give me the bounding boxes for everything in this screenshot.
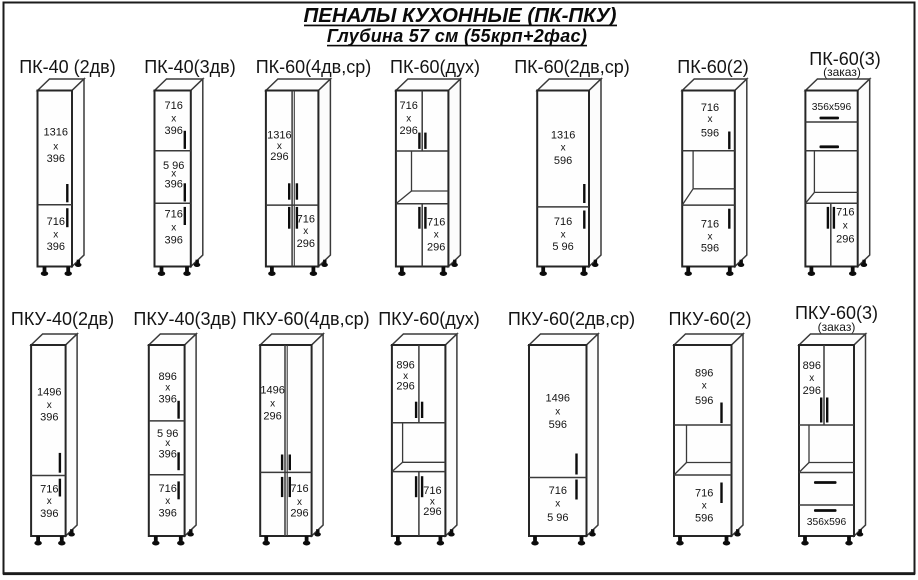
svg-text:716: 716 [423,485,441,497]
svg-text:296: 296 [297,238,315,250]
svg-text:716: 716 [427,216,445,228]
svg-text:x: x [561,143,566,154]
svg-text:x: x [303,226,308,237]
svg-text:396: 396 [40,508,58,520]
svg-text:716: 716 [47,216,65,228]
svg-text:5 96: 5 96 [552,241,573,253]
svg-text:896: 896 [803,360,821,372]
svg-text:356x596: 356x596 [812,102,852,113]
svg-text:396: 396 [165,178,183,190]
svg-text:596: 596 [695,513,713,525]
svg-text:396: 396 [159,394,177,406]
svg-text:396: 396 [47,153,65,165]
svg-text:716: 716 [701,218,719,230]
svg-text:596: 596 [695,395,713,407]
svg-text:ПКУ-60(дух): ПКУ-60(дух) [378,309,480,329]
svg-text:x: x [555,407,560,418]
svg-text:396: 396 [47,241,65,253]
svg-text:x: x [270,399,275,410]
svg-text:x: x [561,230,566,241]
svg-text:716: 716 [165,209,183,221]
svg-text:ПК-60(4дв,ср): ПК-60(4дв,ср) [256,57,372,77]
svg-text:296: 296 [803,385,821,397]
svg-text:(заказ): (заказ) [823,65,861,79]
svg-text:ПКУ-60(4дв,ср): ПКУ-60(4дв,ср) [242,309,369,329]
svg-text:x: x [434,230,439,241]
svg-text:396: 396 [159,449,177,461]
svg-text:x: x [165,383,170,394]
svg-text:x: x [555,499,560,510]
svg-text:x: x [809,373,814,384]
svg-text:ПКУ-60(2дв,ср): ПКУ-60(2дв,ср) [508,309,635,329]
svg-text:716: 716 [40,484,58,496]
svg-text:716: 716 [695,488,713,500]
svg-text:296: 296 [423,506,441,518]
svg-text:716: 716 [701,102,719,114]
svg-text:ПК-40(3дв): ПК-40(3дв) [144,57,236,77]
svg-text:ПК-60(2дв,ср): ПК-60(2дв,ср) [514,57,630,77]
svg-text:x: x [47,496,52,507]
svg-text:ПКУ-40(3дв): ПКУ-40(3дв) [133,309,236,329]
svg-text:296: 296 [290,508,308,520]
svg-text:396: 396 [165,125,183,137]
svg-text:x: x [702,501,707,512]
svg-text:x: x [47,400,52,411]
svg-text:x: x [297,497,302,508]
svg-text:296: 296 [427,242,445,254]
svg-text:x: x [165,438,170,449]
svg-text:ПК-40 (2дв): ПК-40 (2дв) [19,57,116,77]
svg-text:5 96: 5 96 [547,512,568,524]
svg-text:716: 716 [297,214,315,226]
svg-text:896: 896 [159,371,177,383]
svg-text:x: x [165,496,170,507]
svg-text:x: x [53,230,58,241]
svg-text:x: x [843,221,848,232]
svg-text:Глубина 57 см (55крп+2фас): Глубина 57 см (55крп+2фас) [327,26,587,46]
svg-text:1496: 1496 [546,393,570,405]
svg-text:716: 716 [159,483,177,495]
svg-text:296: 296 [396,380,414,392]
svg-text:x: x [53,141,58,152]
svg-text:596: 596 [701,243,719,255]
svg-text:296: 296 [263,411,281,423]
svg-text:1496: 1496 [37,387,61,399]
svg-text:296: 296 [400,125,418,137]
svg-text:ПК-60(2): ПК-60(2) [677,57,748,77]
svg-text:x: x [702,381,707,392]
svg-text:896: 896 [396,360,414,372]
svg-text:596: 596 [554,155,572,167]
svg-text:716: 716 [549,485,567,497]
svg-text:1316: 1316 [267,129,291,141]
svg-text:716: 716 [554,216,572,228]
svg-text:296: 296 [270,151,288,163]
svg-text:x: x [171,113,176,124]
svg-text:296: 296 [836,234,854,246]
svg-text:716: 716 [836,206,854,218]
svg-text:x: x [406,113,411,124]
svg-text:596: 596 [701,128,719,140]
svg-text:396: 396 [159,508,177,520]
svg-text:1496: 1496 [260,385,284,397]
svg-text:ПЕНАЛЫ КУХОННЫЕ (ПК-ПКУ): ПЕНАЛЫ КУХОННЫЕ (ПК-ПКУ) [304,4,617,27]
svg-text:ПКУ-40(2дв): ПКУ-40(2дв) [11,309,114,329]
svg-text:716: 716 [165,100,183,112]
svg-text:1316: 1316 [44,127,68,139]
svg-text:396: 396 [40,411,58,423]
svg-text:x: x [171,223,176,234]
svg-text:896: 896 [695,368,713,380]
svg-text:1316: 1316 [551,129,575,141]
svg-text:396: 396 [165,235,183,247]
svg-text:ПКУ-60(2): ПКУ-60(2) [668,309,751,329]
svg-text:596: 596 [549,419,567,431]
svg-text:716: 716 [290,483,308,495]
svg-text:x: x [708,114,713,125]
svg-text:x: x [708,232,713,243]
svg-text:716: 716 [400,100,418,112]
svg-text:(заказ): (заказ) [818,320,856,334]
svg-text:ПК-60(дух): ПК-60(дух) [390,57,480,77]
svg-text:356x596: 356x596 [807,517,847,528]
